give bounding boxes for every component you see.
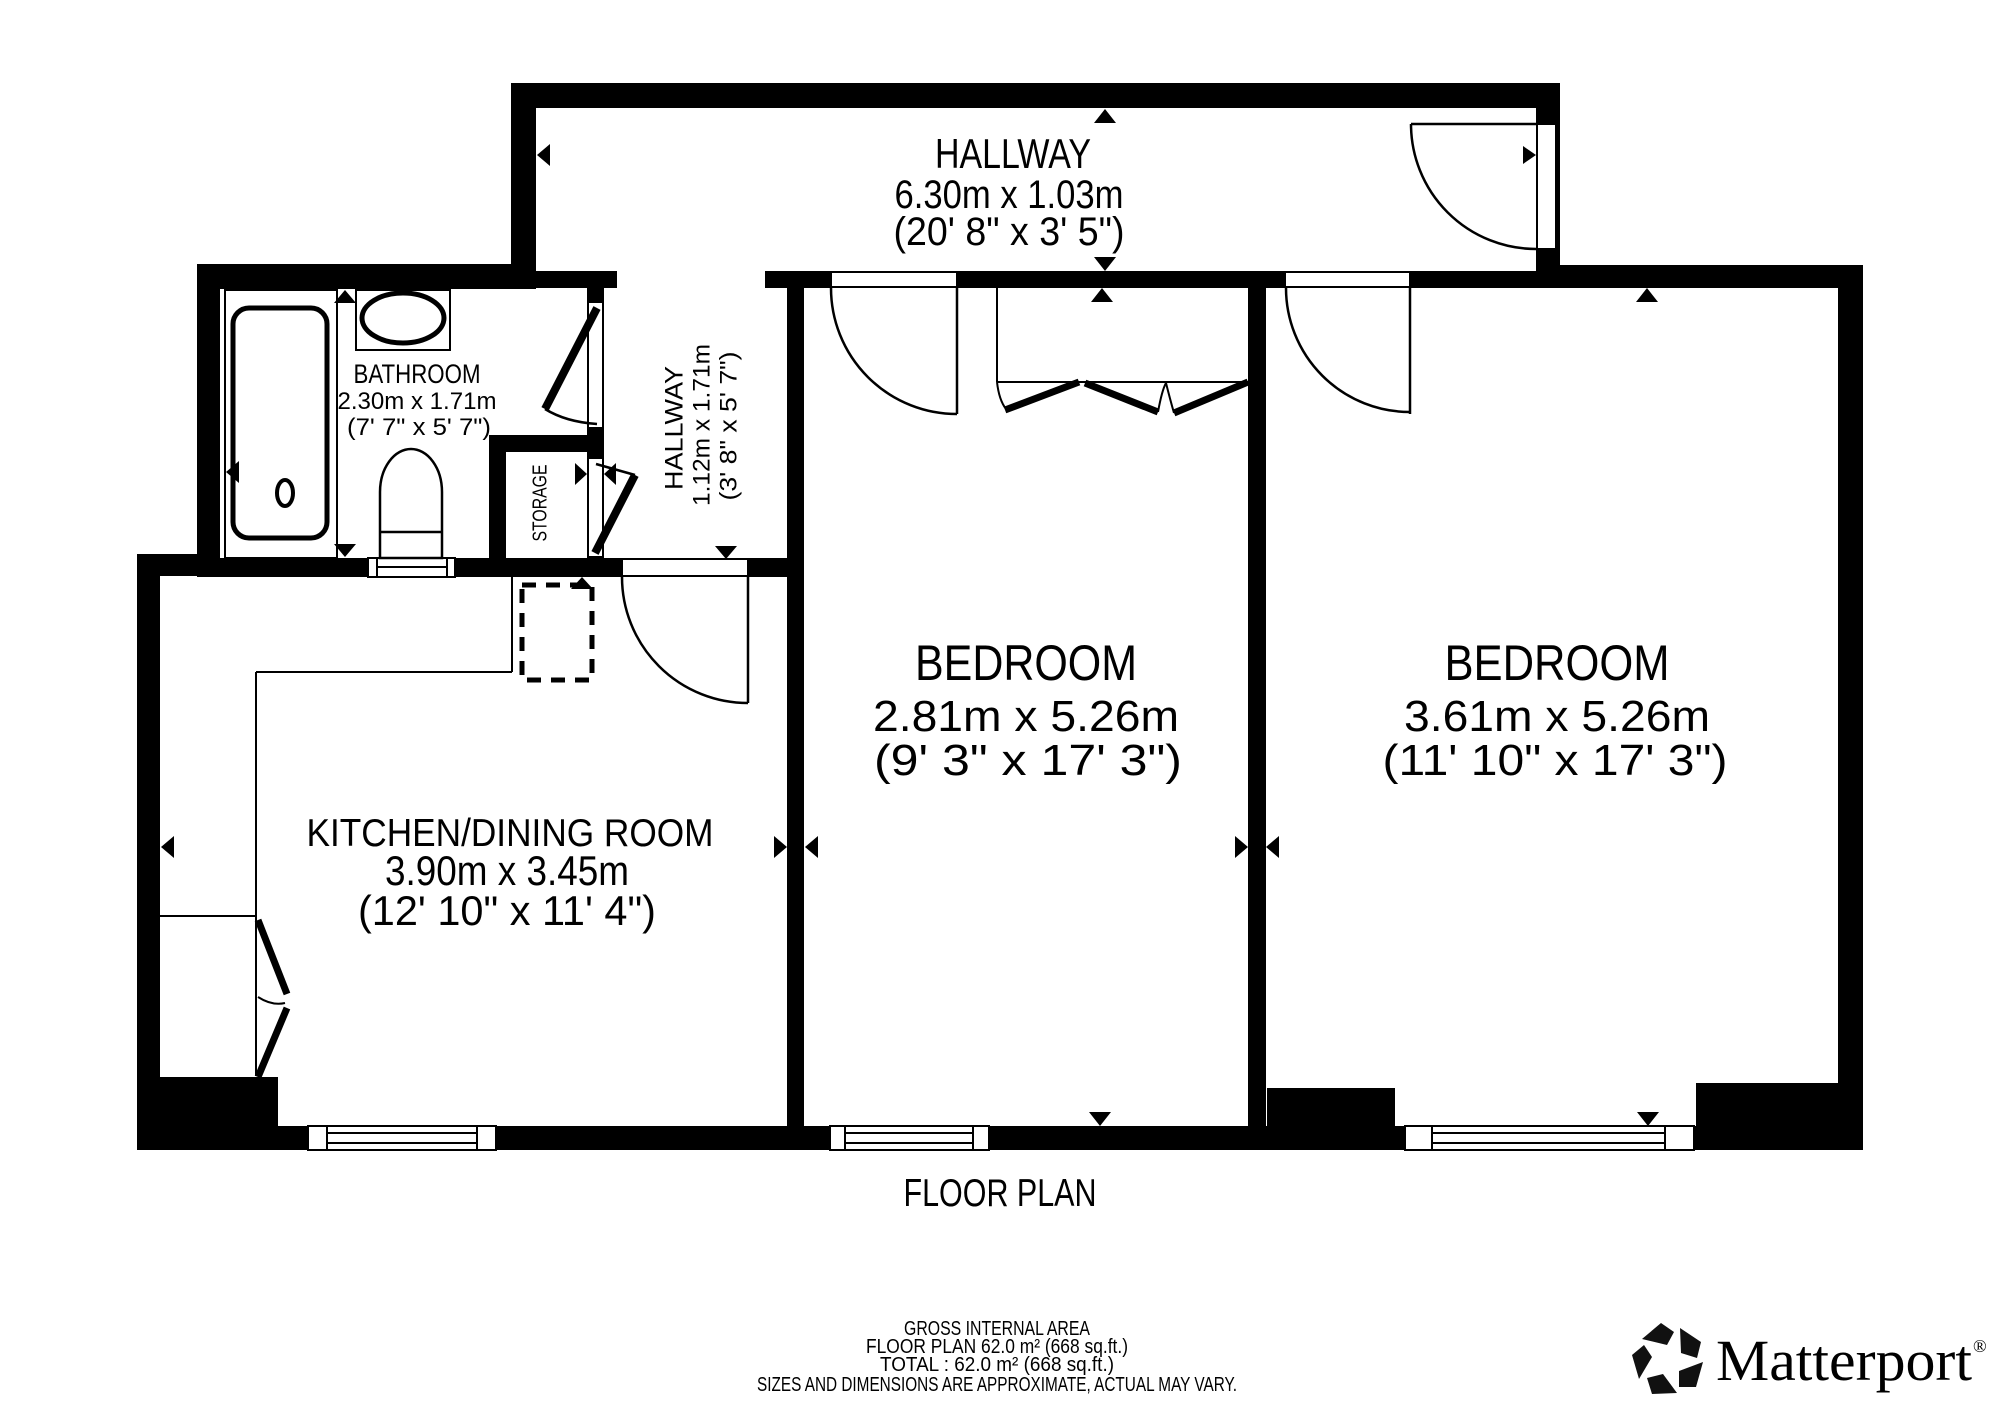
svg-text:STORAGE: STORAGE: [529, 465, 551, 542]
svg-text:(12' 10" x 11' 4"): (12' 10" x 11' 4"): [358, 887, 656, 934]
svg-text:BEDROOM: BEDROOM: [1445, 635, 1670, 691]
svg-text:(11' 10" x 17' 3"): (11' 10" x 17' 3"): [1383, 736, 1728, 785]
svg-text:TOTAL : 62.0 m² (668 sq.ft.): TOTAL : 62.0 m² (668 sq.ft.): [880, 1354, 1114, 1376]
svg-text:HALLWAY: HALLWAY: [935, 130, 1091, 177]
svg-text:(9' 3" x 17' 3"): (9' 3" x 17' 3"): [874, 736, 1182, 785]
svg-text:2.81m x 5.26m: 2.81m x 5.26m: [873, 692, 1179, 741]
svg-text:BEDROOM: BEDROOM: [915, 635, 1137, 691]
svg-text:SIZES AND DIMENSIONS ARE APPRO: SIZES AND DIMENSIONS ARE APPROXIMATE, AC…: [757, 1374, 1237, 1396]
svg-text:BATHROOM: BATHROOM: [354, 359, 481, 389]
svg-text:(20' 8" x 3' 5"): (20' 8" x 3' 5"): [894, 210, 1125, 254]
svg-text:(7' 7" x 5' 7"): (7' 7" x 5' 7"): [347, 414, 491, 441]
svg-text:FLOOR PLAN: FLOOR PLAN: [904, 1172, 1097, 1215]
svg-text:HALLWAY: HALLWAY: [661, 366, 689, 490]
svg-text:Matterport: Matterport: [1716, 1328, 1972, 1393]
svg-text:®: ®: [1973, 1336, 1987, 1356]
svg-text:3.61m x 5.26m: 3.61m x 5.26m: [1404, 692, 1710, 741]
svg-text:(3' 8" x 5' 7"): (3' 8" x 5' 7"): [715, 352, 742, 501]
svg-text:2.30m x 1.71m: 2.30m x 1.71m: [338, 388, 497, 415]
svg-text:1.12m x 1.71m: 1.12m x 1.71m: [688, 344, 715, 506]
